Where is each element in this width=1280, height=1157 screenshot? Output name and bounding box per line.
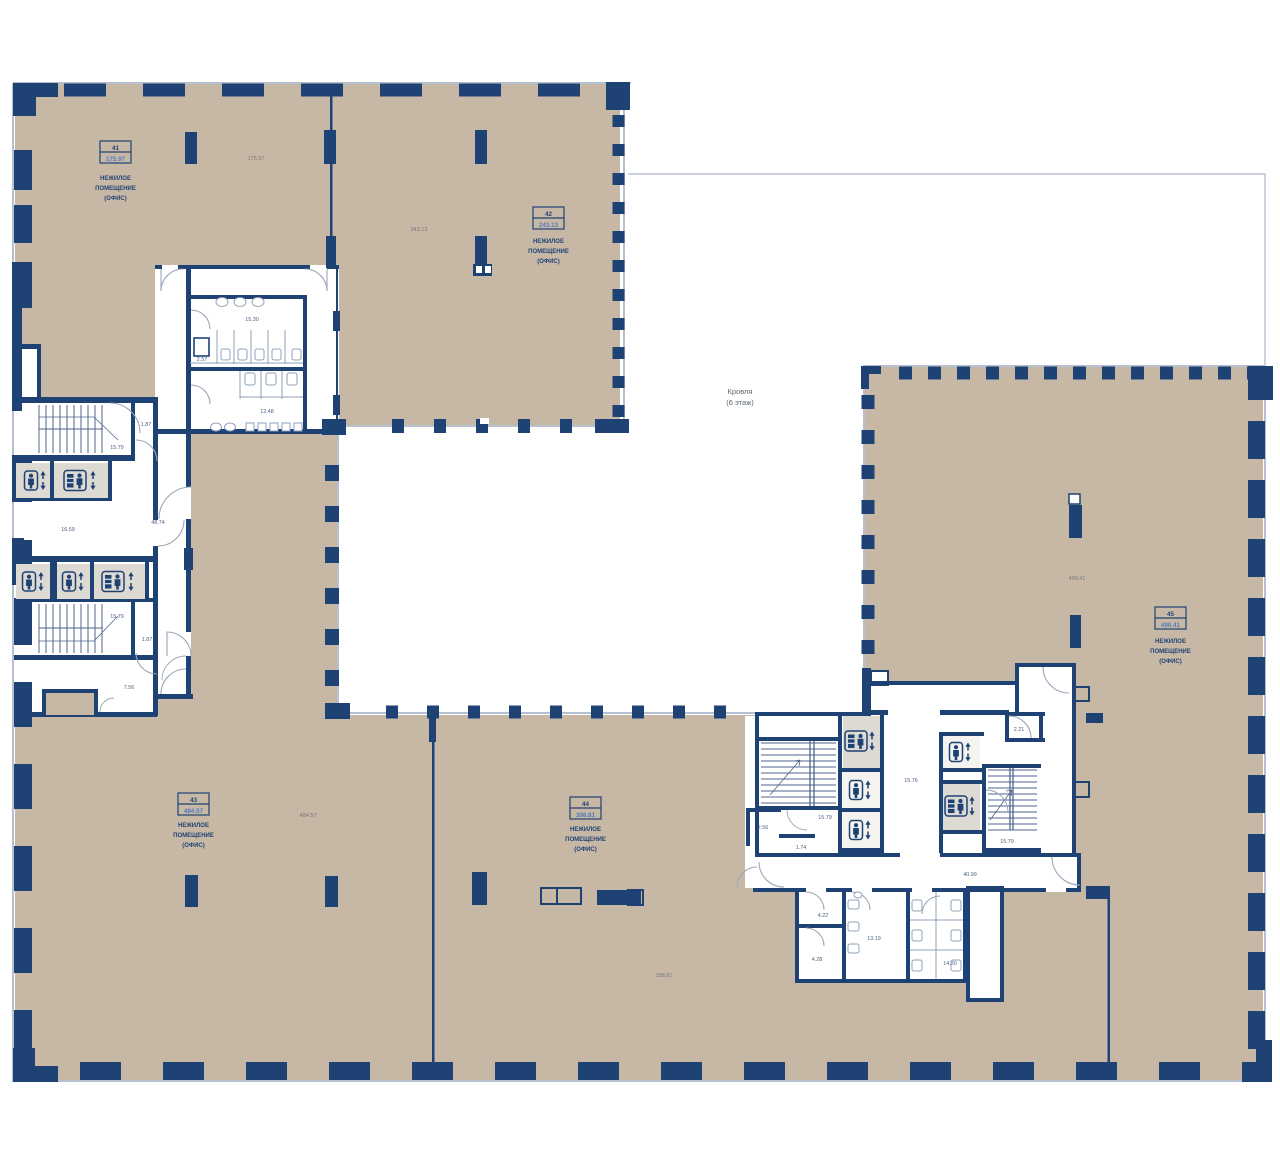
svg-text:243.13: 243.13: [539, 222, 559, 229]
svg-text:НЕЖИЛОЕ: НЕЖИЛОЕ: [533, 239, 564, 245]
svg-text:490.41: 490.41: [1069, 576, 1086, 582]
svg-text:ПОМЕЩЕНИЕ: ПОМЕЩЕНИЕ: [565, 837, 606, 843]
svg-text:175.97: 175.97: [248, 156, 265, 162]
svg-text:15.79: 15.79: [110, 614, 124, 620]
svg-text:45: 45: [1167, 611, 1175, 618]
svg-text:15.76: 15.76: [904, 778, 918, 784]
svg-text:4.22: 4.22: [818, 913, 829, 919]
svg-text:ПОМЕЩЕНИЕ: ПОМЕЩЕНИЕ: [173, 833, 214, 839]
svg-text:175.97: 175.97: [106, 156, 126, 163]
svg-text:15.30: 15.30: [245, 317, 259, 323]
svg-text:484.57: 484.57: [300, 813, 317, 819]
svg-text:НЕЖИЛОЕ: НЕЖИЛОЕ: [1155, 639, 1186, 645]
svg-text:48.74: 48.74: [151, 520, 165, 526]
svg-text:484.57: 484.57: [184, 808, 204, 815]
svg-text:1.87: 1.87: [142, 637, 153, 643]
svg-text:44: 44: [582, 801, 590, 808]
svg-text:12.48: 12.48: [260, 409, 274, 415]
svg-text:4.28: 4.28: [812, 957, 823, 963]
svg-text:НЕЖИЛОЕ: НЕЖИЛОЕ: [178, 823, 209, 829]
svg-text:15.79: 15.79: [818, 815, 832, 821]
svg-text:43: 43: [190, 797, 198, 804]
svg-text:1.74: 1.74: [796, 845, 807, 851]
svg-text:41: 41: [112, 145, 120, 152]
svg-text:Кровля: Кровля: [728, 387, 753, 396]
svg-text:(ОФИС): (ОФИС): [182, 843, 204, 849]
svg-text:13.19: 13.19: [867, 936, 881, 942]
svg-text:(ОФИС): (ОФИС): [104, 196, 126, 202]
svg-text:15.79: 15.79: [1000, 839, 1014, 845]
svg-text:ПОМЕЩЕНИЕ: ПОМЕЩЕНИЕ: [95, 186, 136, 192]
svg-text:398.81: 398.81: [656, 973, 673, 979]
svg-text:2.21: 2.21: [1014, 727, 1025, 733]
svg-text:(ОФИС): (ОФИС): [574, 847, 596, 853]
svg-text:42: 42: [545, 211, 553, 218]
svg-text:243.13: 243.13: [411, 227, 428, 233]
svg-text:15.79: 15.79: [110, 445, 124, 451]
svg-text:7.56: 7.56: [124, 685, 135, 691]
svg-text:НЕЖИЛОЕ: НЕЖИЛОЕ: [100, 176, 131, 182]
svg-text:(ОФИС): (ОФИС): [1159, 659, 1181, 665]
svg-text:16.59: 16.59: [61, 527, 75, 533]
svg-text:(6 этаж): (6 этаж): [726, 398, 754, 407]
svg-text:НЕЖИЛОЕ: НЕЖИЛОЕ: [570, 827, 601, 833]
svg-text:14.30: 14.30: [943, 961, 957, 967]
svg-text:40.99: 40.99: [963, 872, 977, 878]
svg-text:1.87: 1.87: [141, 422, 152, 428]
svg-text:ПОМЕЩЕНИЕ: ПОМЕЩЕНИЕ: [1150, 649, 1191, 655]
svg-text:ПОМЕЩЕНИЕ: ПОМЕЩЕНИЕ: [528, 249, 569, 255]
svg-text:490.41: 490.41: [1161, 622, 1181, 629]
svg-text:(ОФИС): (ОФИС): [537, 259, 559, 265]
svg-text:398.81: 398.81: [576, 812, 596, 819]
svg-text:2.56: 2.56: [758, 825, 769, 831]
svg-text:2.57: 2.57: [197, 357, 208, 363]
